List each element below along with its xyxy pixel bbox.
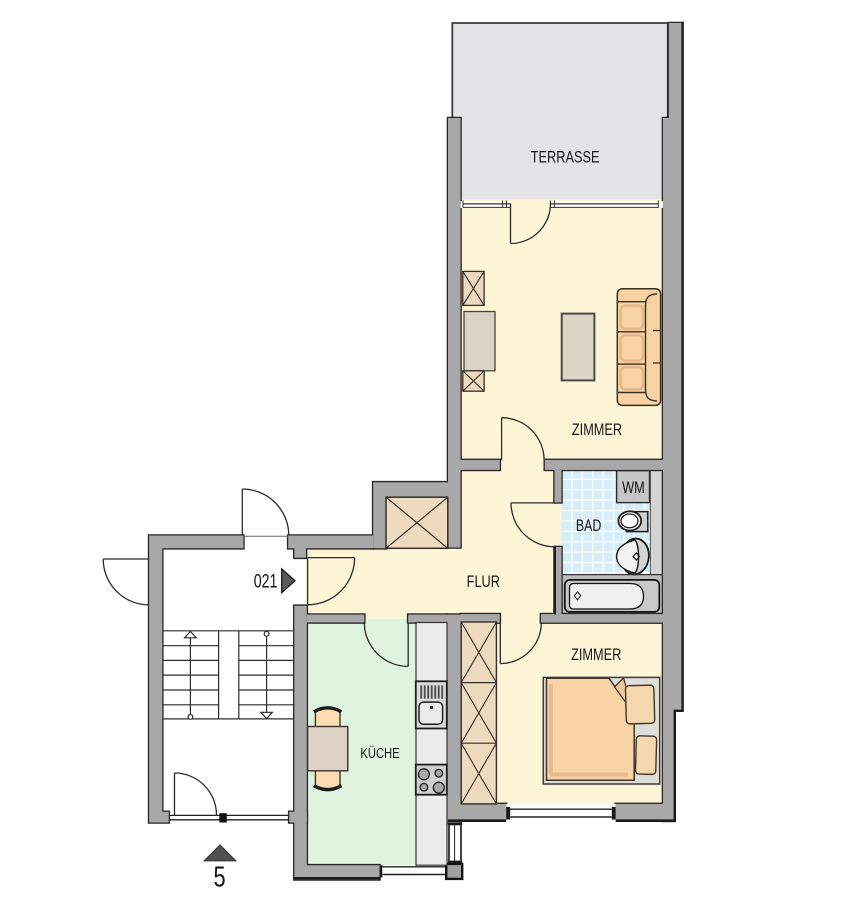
svg-text:KÜCHE: KÜCHE [360,744,399,761]
svg-text:ZIMMER: ZIMMER [571,645,621,664]
svg-text:FLUR: FLUR [467,572,500,591]
svg-text:WM: WM [622,478,645,497]
svg-text:TERRASSE: TERRASSE [531,148,600,167]
svg-text:BAD: BAD [576,517,601,535]
svg-text:021: 021 [254,571,278,592]
svg-text:ZIMMER: ZIMMER [572,420,622,439]
svg-text:5: 5 [213,862,225,894]
